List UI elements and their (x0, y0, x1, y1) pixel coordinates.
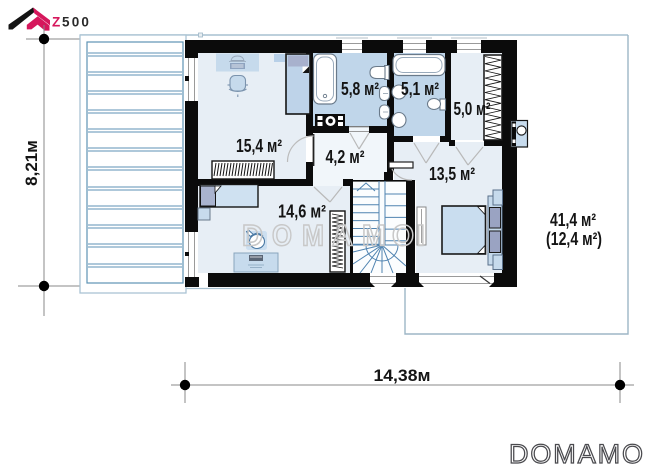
svg-text:M: M (302, 220, 324, 253)
svg-text:O: O (272, 220, 292, 253)
svg-text:I: I (417, 220, 425, 253)
svg-text:13,5 м²: 13,5 м² (429, 164, 475, 184)
svg-text:8,21м: 8,21м (22, 140, 41, 186)
svg-text:M: M (362, 220, 386, 253)
svg-text:DOMAMO: DOMAMO (509, 439, 645, 469)
svg-text:14,38м: 14,38м (374, 366, 431, 385)
svg-text:14,6 м²: 14,6 м² (278, 202, 326, 222)
svg-text:D: D (242, 220, 263, 253)
svg-text:500: 500 (62, 15, 91, 30)
svg-text:4,2 м²: 4,2 м² (326, 147, 365, 167)
svg-text:5,8 м²: 5,8 м² (341, 79, 379, 99)
svg-text:15,4 м²: 15,4 м² (236, 136, 282, 156)
svg-text:5,1 м²: 5,1 м² (401, 79, 439, 99)
svg-text:Z: Z (52, 15, 60, 30)
svg-text:O: O (392, 220, 414, 253)
svg-text:41,4 м²: 41,4 м² (550, 210, 596, 230)
svg-text:A: A (332, 220, 353, 253)
svg-text:5,0 м²: 5,0 м² (454, 99, 491, 119)
svg-text:(12,4 м²): (12,4 м²) (546, 229, 602, 249)
